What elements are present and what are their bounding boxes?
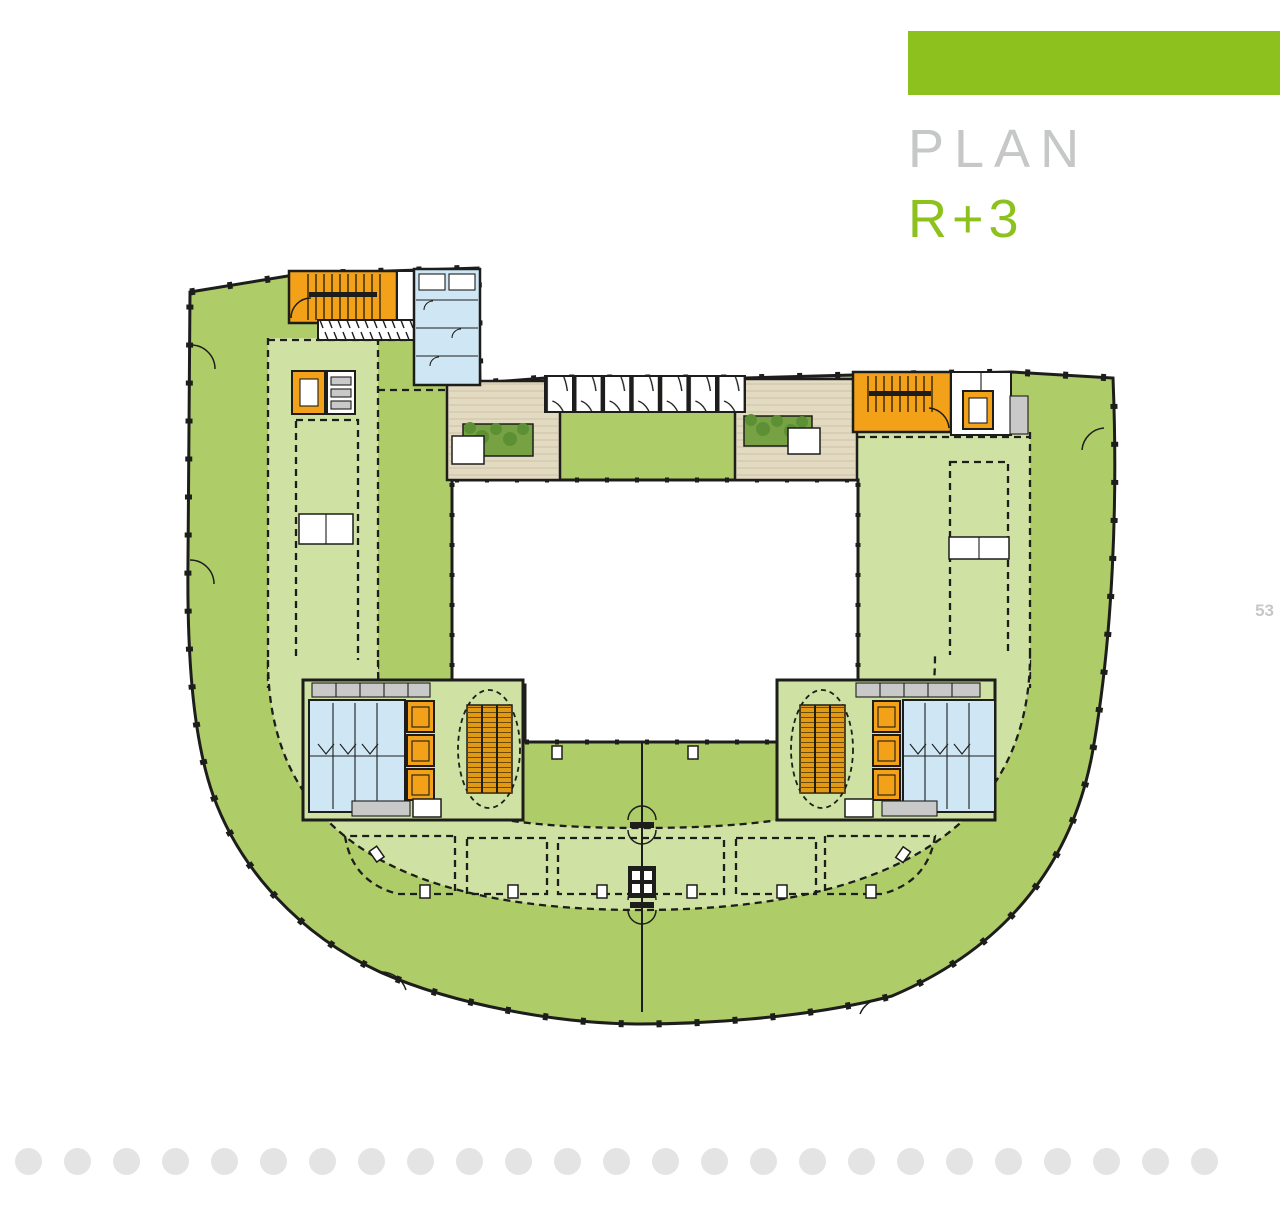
core-right [777, 680, 995, 820]
escalator-left [458, 690, 520, 808]
footer-dot [946, 1148, 973, 1175]
footer-dot [260, 1148, 287, 1175]
footer-dot [995, 1148, 1022, 1175]
footer-dot [1191, 1148, 1218, 1175]
footer-dot [407, 1148, 434, 1175]
core-left [303, 680, 523, 820]
footer-dot [554, 1148, 581, 1175]
footer-dot [456, 1148, 483, 1175]
escalator-right [791, 690, 853, 808]
footer-dot [1142, 1148, 1169, 1175]
footer-dot [64, 1148, 91, 1175]
corridor-right-wing [846, 432, 1030, 688]
footer-dot [113, 1148, 140, 1175]
floor-plan [0, 0, 1280, 1208]
footer-dot [652, 1148, 679, 1175]
footer-dot [1044, 1148, 1071, 1175]
footer-dot [750, 1148, 777, 1175]
wc-top-left [414, 269, 480, 385]
elevator-bank-right [873, 701, 900, 800]
tech-box [628, 866, 656, 898]
footer-dot [848, 1148, 875, 1175]
footer-dots [15, 1148, 1218, 1175]
wc-left [309, 700, 405, 812]
footer-dot [897, 1148, 924, 1175]
footer-dot [603, 1148, 630, 1175]
terrace-right [735, 379, 857, 480]
footer-dot [1093, 1148, 1120, 1175]
footer-dot [162, 1148, 189, 1175]
footer-dot [309, 1148, 336, 1175]
footer-dot [799, 1148, 826, 1175]
pergola-bridge [545, 376, 745, 412]
footer-dot [211, 1148, 238, 1175]
footer-dot [358, 1148, 385, 1175]
footer-dot [15, 1148, 42, 1175]
footer-dot [701, 1148, 728, 1175]
stairwell-top-right [853, 372, 1028, 435]
terrace-left [447, 381, 560, 480]
wc-right [903, 700, 995, 812]
elevator-bank-left [407, 701, 434, 800]
footer-dot [505, 1148, 532, 1175]
